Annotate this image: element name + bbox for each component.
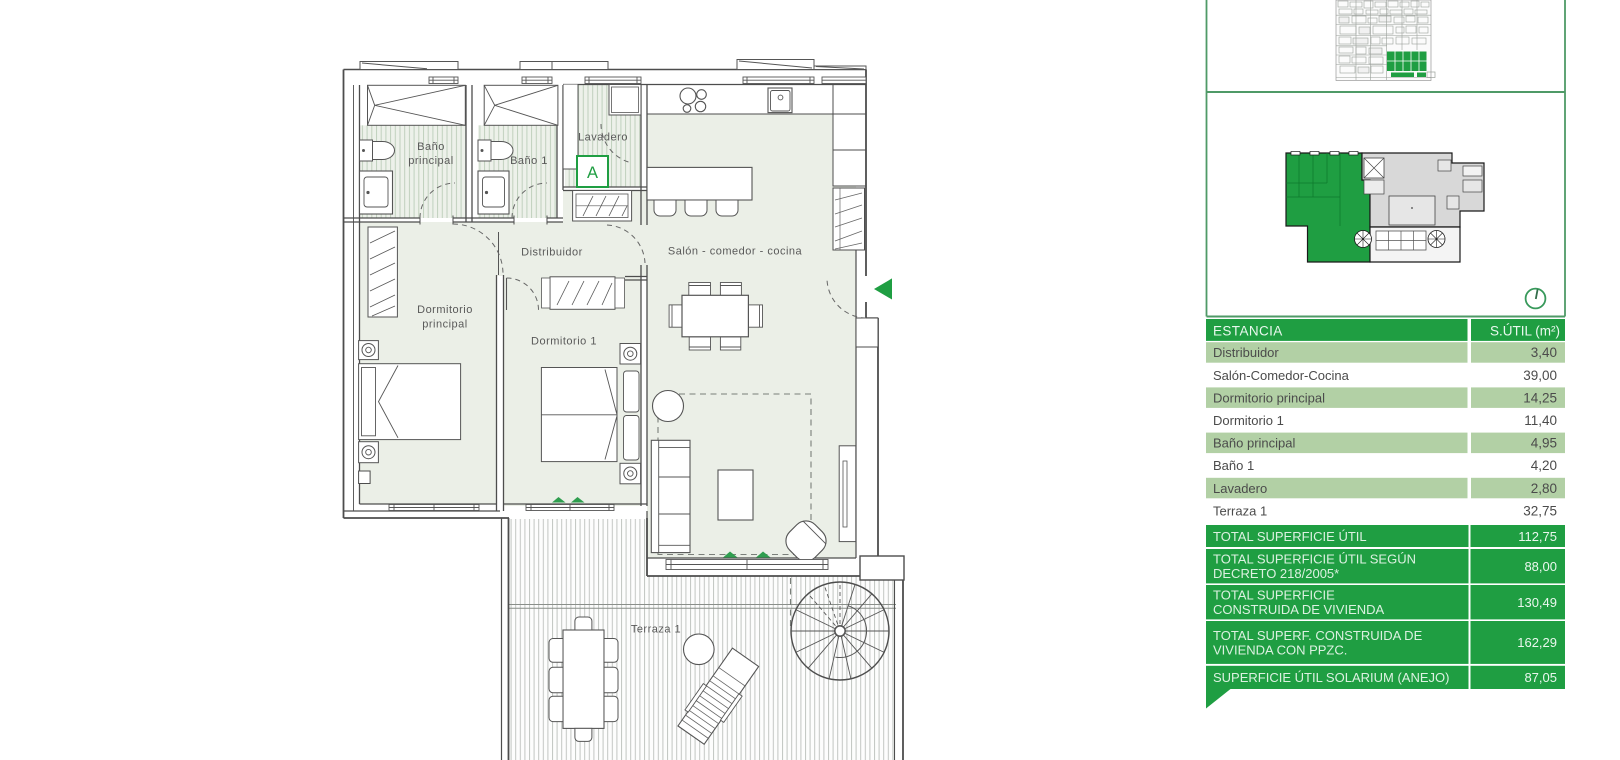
- svg-text:Dormitorio 1: Dormitorio 1: [531, 336, 597, 348]
- svg-text:TOTAL SUPERFICIE ÚTIL: TOTAL SUPERFICIE ÚTIL: [1213, 529, 1367, 544]
- svg-text:4,20: 4,20: [1531, 458, 1557, 473]
- svg-text:Salón-Comedor-Cocina: Salón-Comedor-Cocina: [1213, 368, 1350, 383]
- svg-text:principal: principal: [422, 319, 467, 331]
- svg-text:VIVIENDA CON PPZC.: VIVIENDA CON PPZC.: [1213, 643, 1347, 658]
- svg-text:principal: principal: [408, 155, 453, 167]
- svg-text:Dormitorio: Dormitorio: [417, 304, 473, 316]
- svg-text:112,75: 112,75: [1518, 529, 1557, 544]
- svg-text:Dormitorio principal: Dormitorio principal: [1213, 390, 1325, 405]
- svg-text:39,00: 39,00: [1523, 368, 1557, 383]
- svg-text:32,75: 32,75: [1523, 503, 1557, 518]
- svg-text:Baño 1: Baño 1: [1213, 458, 1254, 473]
- svg-text:ESTANCIA: ESTANCIA: [1213, 323, 1283, 338]
- svg-text:87,05: 87,05: [1524, 670, 1557, 685]
- svg-text:Lavadero: Lavadero: [578, 132, 628, 144]
- svg-text:11,40: 11,40: [1524, 413, 1557, 428]
- svg-text:Distribuidor: Distribuidor: [1213, 345, 1279, 360]
- svg-text:130,49: 130,49: [1517, 595, 1557, 610]
- svg-text:Baño 1: Baño 1: [510, 155, 548, 167]
- svg-text:Salón - comedor - cocina: Salón - comedor - cocina: [668, 246, 803, 258]
- svg-text:SUPERFICIE ÚTIL SOLARIUM (ANEJ: SUPERFICIE ÚTIL SOLARIUM (ANEJO): [1213, 670, 1449, 685]
- svg-text:3,40: 3,40: [1531, 345, 1557, 360]
- svg-text:4,95: 4,95: [1531, 436, 1557, 451]
- svg-text:S.ÚTIL (m²): S.ÚTIL (m²): [1490, 323, 1560, 338]
- svg-text:14,25: 14,25: [1523, 390, 1557, 405]
- svg-text:TOTAL SUPERFICIE ÚTIL SEGÚN: TOTAL SUPERFICIE ÚTIL SEGÚN: [1213, 552, 1416, 567]
- svg-text:Baño principal: Baño principal: [1213, 436, 1295, 451]
- svg-text:Baño: Baño: [417, 141, 445, 153]
- svg-text:Lavadero: Lavadero: [1213, 481, 1267, 496]
- svg-text:Dormitorio 1: Dormitorio 1: [1213, 413, 1284, 428]
- svg-text:DECRETO 218/2005*: DECRETO 218/2005*: [1213, 566, 1339, 581]
- svg-text:2,80: 2,80: [1531, 481, 1557, 496]
- svg-text:Terraza 1: Terraza 1: [631, 624, 681, 636]
- svg-text:88,00: 88,00: [1524, 559, 1557, 574]
- svg-text:TOTAL SUPERFICIE: TOTAL SUPERFICIE: [1213, 588, 1335, 603]
- svg-text:Distribuidor: Distribuidor: [521, 247, 583, 259]
- svg-text:162,29: 162,29: [1517, 635, 1557, 650]
- svg-text:CONSTRUIDA DE VIVIENDA: CONSTRUIDA DE VIVIENDA: [1213, 602, 1385, 617]
- svg-text:Terraza 1: Terraza 1: [1213, 503, 1267, 518]
- svg-text:TOTAL SUPERF. CONSTRUIDA DE: TOTAL SUPERF. CONSTRUIDA DE: [1213, 628, 1423, 643]
- svg-text:A: A: [587, 164, 598, 182]
